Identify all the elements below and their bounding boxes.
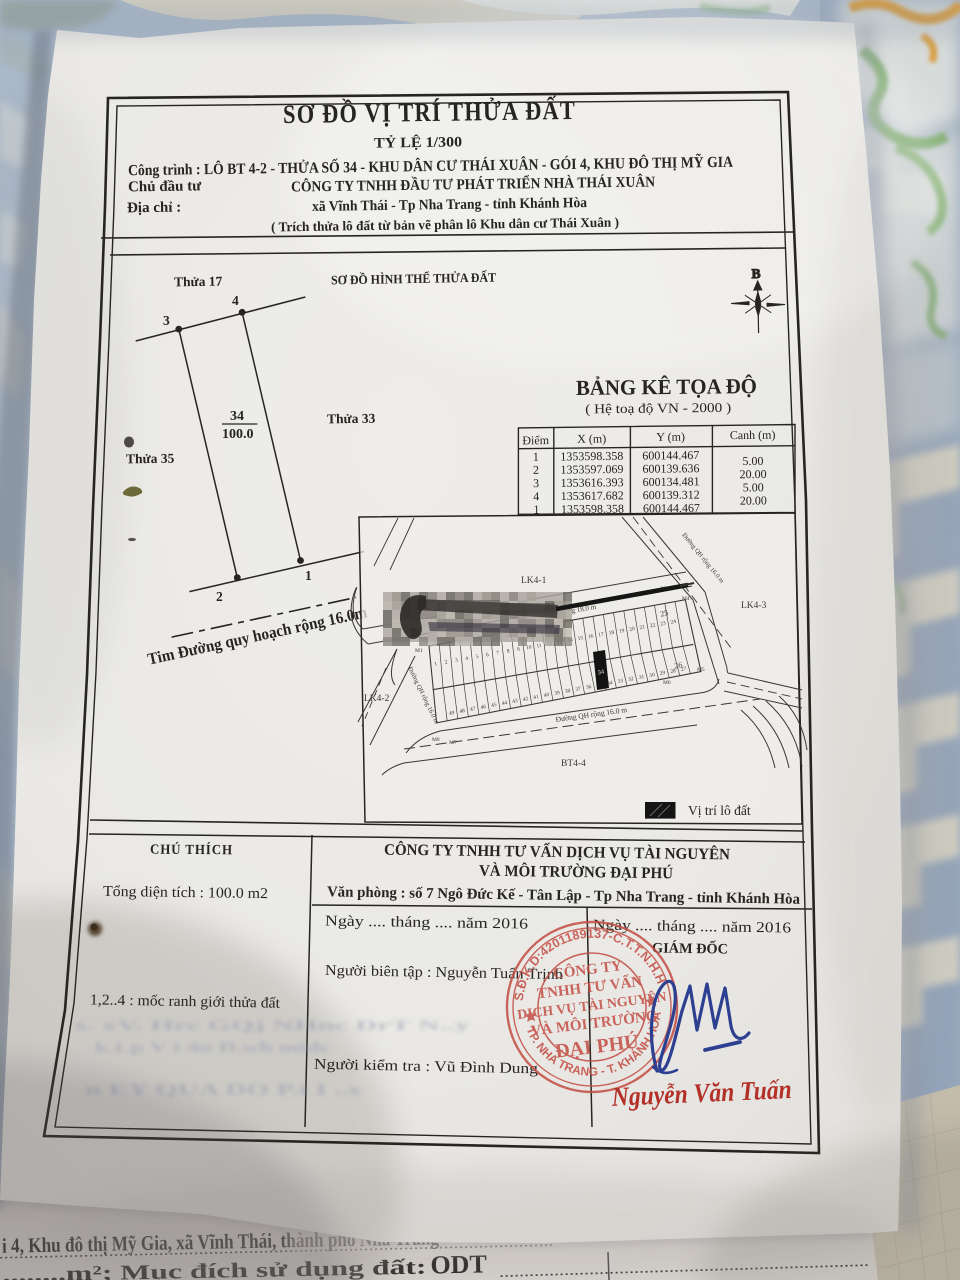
svg-text:k.Lp V t 4u D.wh midc: k.Lp V t 4u D.wh midc — [95, 1040, 331, 1056]
svg-text:M4: M4 — [682, 596, 690, 602]
svg-text:s. xV. Hrc GQj NHnc DrT N..y: s. xV. Hrc GQj NHnc DrT N..y — [75, 1018, 471, 1034]
svg-text:1: 1 — [533, 450, 539, 464]
svg-text:X (m): X (m) — [577, 431, 606, 445]
svg-text:1: 1 — [305, 568, 312, 583]
svg-text:2: 2 — [533, 463, 539, 477]
svg-text:Tổng diện tích : 100.0 m2: Tổng diện tích : 100.0 m2 — [103, 884, 268, 902]
svg-text:TỶ LỆ 1/300: TỶ LỆ 1/300 — [374, 133, 462, 151]
svg-text:M6: M6 — [663, 680, 671, 686]
svg-text:Chủ đầu tư: Chủ đầu tư — [128, 178, 202, 195]
svg-text:3: 3 — [163, 313, 170, 328]
svg-text:600144.467: 600144.467 — [643, 501, 700, 516]
svg-text:Vị trí lô đất: Vị trí lô đất — [688, 803, 751, 818]
svg-text:Điểm: Điểm — [522, 433, 549, 447]
svg-text:CHÚ THÍCH: CHÚ THÍCH — [150, 841, 233, 859]
svg-text:( Hệ toạ độ VN - 2000 ): ( Hệ toạ độ VN - 2000 ) — [585, 400, 731, 417]
svg-text:M1: M1 — [415, 648, 423, 654]
svg-text:3: 3 — [533, 476, 539, 490]
svg-text:100.0: 100.0 — [222, 427, 254, 442]
svg-text:M8: M8 — [432, 737, 440, 743]
svg-text:SƠ ĐỒ HÌNH THỂ THỬA ĐẤT: SƠ ĐỒ HÌNH THỂ THỬA ĐẤT — [331, 270, 497, 288]
svg-text:LK4-1: LK4-1 — [521, 576, 547, 586]
svg-text:Thửa 33: Thửa 33 — [327, 411, 376, 427]
svg-text:20.00: 20.00 — [739, 467, 766, 481]
svg-text:Địa chỉ :: Địa chỉ : — [127, 200, 181, 217]
svg-text:M5: M5 — [697, 667, 705, 673]
svg-text:Thửa 17: Thửa 17 — [174, 274, 223, 290]
svg-text:M7: M7 — [449, 740, 457, 746]
svg-text:2: 2 — [216, 589, 223, 604]
svg-text:LK4-3: LK4-3 — [741, 601, 767, 611]
svg-text:Ngày .... tháng .... năm: Ngày .... tháng .... năm 2016 — [325, 913, 529, 932]
svg-text:SƠ ĐỒ VỊ TRÍ THỬA ĐẤT: SƠ ĐỒ VỊ TRÍ THỬA ĐẤT — [283, 94, 576, 129]
svg-text:1: 1 — [533, 502, 539, 516]
svg-text:GIÁM ĐỐC: GIÁM ĐỐC — [652, 938, 728, 957]
svg-text:5.00: 5.00 — [742, 454, 763, 468]
svg-text:4: 4 — [533, 489, 539, 503]
svg-text:Y (m): Y (m) — [656, 430, 685, 444]
svg-text:BẢNG KÊ TỌA ĐỘ: BẢNG KÊ TỌA ĐỘ — [576, 374, 757, 400]
svg-text:34: 34 — [230, 409, 244, 424]
svg-text:B: B — [751, 266, 760, 281]
svg-text:20.00: 20.00 — [740, 493, 767, 507]
svg-text:LK4-2: LK4-2 — [364, 694, 390, 704]
svg-text:4: 4 — [232, 293, 239, 308]
svg-text:Canh (m): Canh (m) — [730, 428, 776, 442]
svg-text:5.00: 5.00 — [743, 480, 764, 494]
svg-text:1,2..4 : mốc ranh giới thửa đấ: 1,2..4 : mốc ranh giới thửa đất — [90, 992, 281, 1011]
svg-text:Thửa 35: Thửa 35 — [126, 451, 175, 467]
svg-text:BT4-4: BT4-4 — [561, 759, 586, 769]
